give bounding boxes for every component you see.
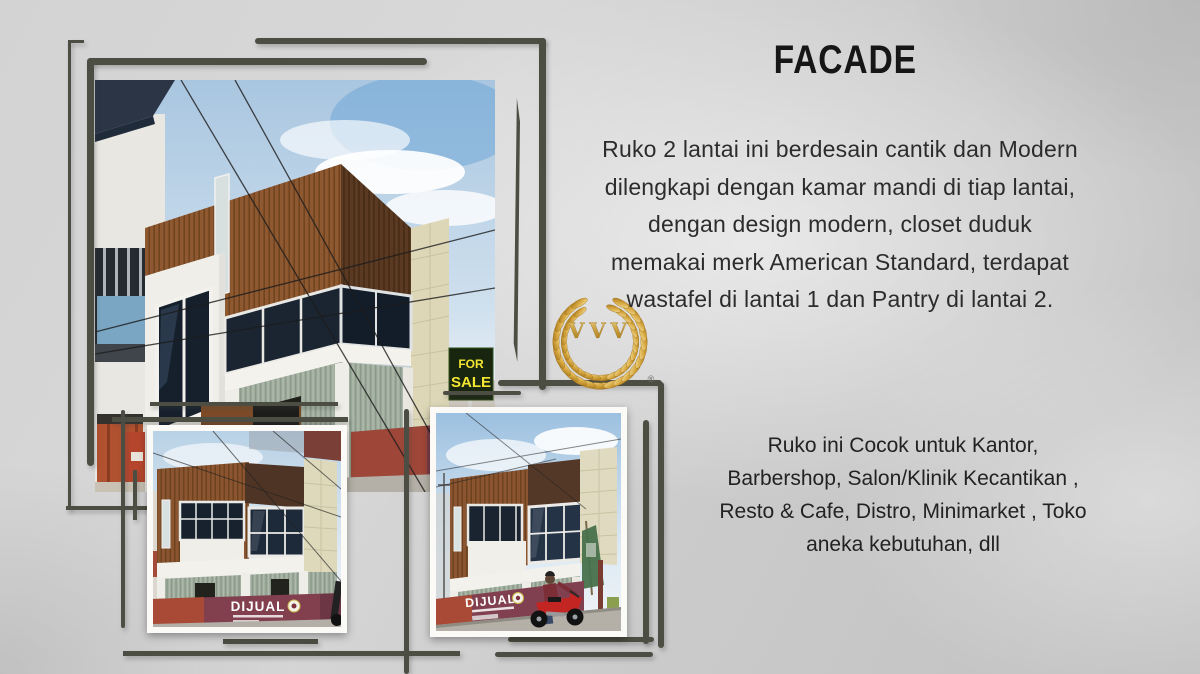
sketch-stroke (255, 38, 546, 44)
usage-line: aneka kebutuhan, dll (643, 528, 1163, 561)
sketch-stroke (404, 409, 409, 674)
sketch-stroke (121, 410, 125, 628)
building-photo-front-art: DIJUAL (153, 431, 341, 627)
description-line: wastafel di lantai 1 dan Pantry di lanta… (560, 281, 1120, 319)
sketch-stroke (513, 98, 520, 362)
description-line: memakai merk American Standard, terdapat (560, 244, 1120, 282)
sketch-stroke (123, 651, 460, 656)
description-line: Ruko 2 lantai ini berdesain cantik dan M… (560, 131, 1120, 169)
for-sale-sign-line1: FOR (458, 357, 484, 371)
building-photo-front: DIJUAL (147, 425, 347, 633)
sketch-stroke (133, 470, 137, 520)
usage-line: Barbershop, Salon/Klinik Kecantikan , (643, 462, 1163, 495)
page-title: FACADE (595, 38, 1095, 83)
page-title-text: FACADE (773, 38, 916, 83)
sketch-stroke (87, 58, 427, 65)
brand-monogram: VVV (567, 318, 632, 343)
sketch-stroke (495, 652, 653, 657)
description-line: dengan design modern, closet duduk (560, 206, 1120, 244)
sketch-stroke (68, 40, 71, 510)
dijual-banner-text: DIJUAL (231, 599, 286, 614)
building-photo-street: DIJUAL (430, 407, 627, 637)
description-paragraph: Ruko 2 lantai ini berdesain cantik dan M… (560, 131, 1120, 319)
usage-line: Ruko ini Cocok untuk Kantor, (643, 429, 1163, 462)
sketch-stroke (87, 58, 94, 466)
usage-line: Resto & Cafe, Distro, Minimarket , Toko (643, 495, 1163, 528)
sketch-stroke (150, 402, 338, 406)
registered-trademark-symbol: ® (648, 374, 655, 384)
sketch-stroke (68, 40, 84, 43)
sketch-stroke (112, 417, 348, 422)
sketch-stroke (223, 639, 318, 644)
for-sale-sign-line2: SALE (451, 374, 491, 391)
sketch-stroke (508, 637, 654, 642)
sketch-stroke (66, 506, 158, 510)
description-line: dilengkapi dengan kamar mandi di tiap la… (560, 169, 1120, 207)
usage-paragraph: Ruko ini Cocok untuk Kantor, Barbershop,… (643, 429, 1163, 561)
building-photo-street-art: DIJUAL (436, 413, 621, 631)
slide-canvas: FOR SALE (0, 0, 1200, 674)
sketch-stroke (443, 391, 521, 395)
